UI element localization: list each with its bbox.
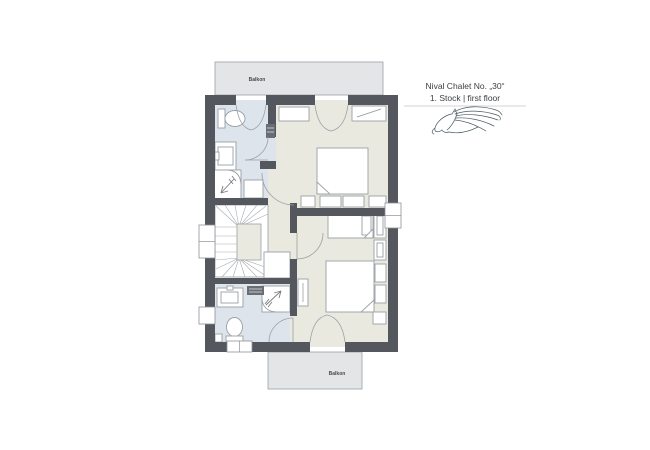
- window-bottom: [227, 341, 252, 352]
- wall-stairs-north: [215, 198, 268, 205]
- bed-headboard: [301, 196, 386, 207]
- floor-plan-page: Balkon Balkon: [0, 0, 650, 450]
- floor-plan-image: Balkon Balkon: [0, 0, 650, 450]
- nightstand: [369, 196, 386, 207]
- radiator-icon: [266, 124, 275, 138]
- towel-radiator-icon: [247, 286, 264, 295]
- window-left-upper: [199, 225, 215, 258]
- bath-cabinet: [244, 180, 263, 198]
- balcony-top: Balkon: [215, 62, 383, 95]
- nightstand: [301, 196, 315, 207]
- toilet-tank-icon: [218, 109, 225, 128]
- balcony-top-label: Balkon: [249, 77, 266, 83]
- title-line1: Nival Chalet No. „30“: [426, 81, 505, 91]
- wardrobe: [352, 106, 386, 121]
- sink-faucet-icon: [227, 286, 233, 290]
- horse-logo-icon: [432, 107, 502, 134]
- window-left-lower: [199, 307, 215, 324]
- title-block: Nival Chalet No. „30“ 1. Stock | first f…: [404, 81, 526, 134]
- double-bed: [326, 261, 374, 312]
- pillow-icon: [343, 196, 364, 207]
- floor-drain-icon: [215, 334, 222, 342]
- pillow-icon: [375, 285, 386, 303]
- sink-faucet-icon: [215, 152, 219, 160]
- wall-hall-east-upper: [290, 216, 297, 233]
- balcony-bottom-label: Balkon: [329, 371, 346, 377]
- balcony-top-deck: [215, 62, 383, 95]
- toilet-icon: [227, 318, 243, 337]
- double-bed: [317, 148, 368, 194]
- wall-stairs-south: [215, 278, 290, 284]
- wall-bedroom-divider: [290, 208, 388, 216]
- wardrobe: [374, 213, 386, 238]
- wall-jog: [260, 161, 276, 169]
- pillow-icon: [375, 264, 386, 282]
- balcony-bottom-deck: [268, 352, 362, 389]
- title-line2: 1. Stock | first floor: [430, 93, 500, 103]
- staircase-core: [237, 224, 261, 260]
- pillow-icon: [320, 196, 341, 207]
- balcony-bottom: Balkon: [268, 352, 362, 389]
- closet: [264, 252, 290, 278]
- nightstand: [373, 312, 386, 324]
- window-right: [385, 203, 401, 228]
- dresser: [279, 107, 309, 121]
- wall-hall-east-lower: [290, 259, 297, 316]
